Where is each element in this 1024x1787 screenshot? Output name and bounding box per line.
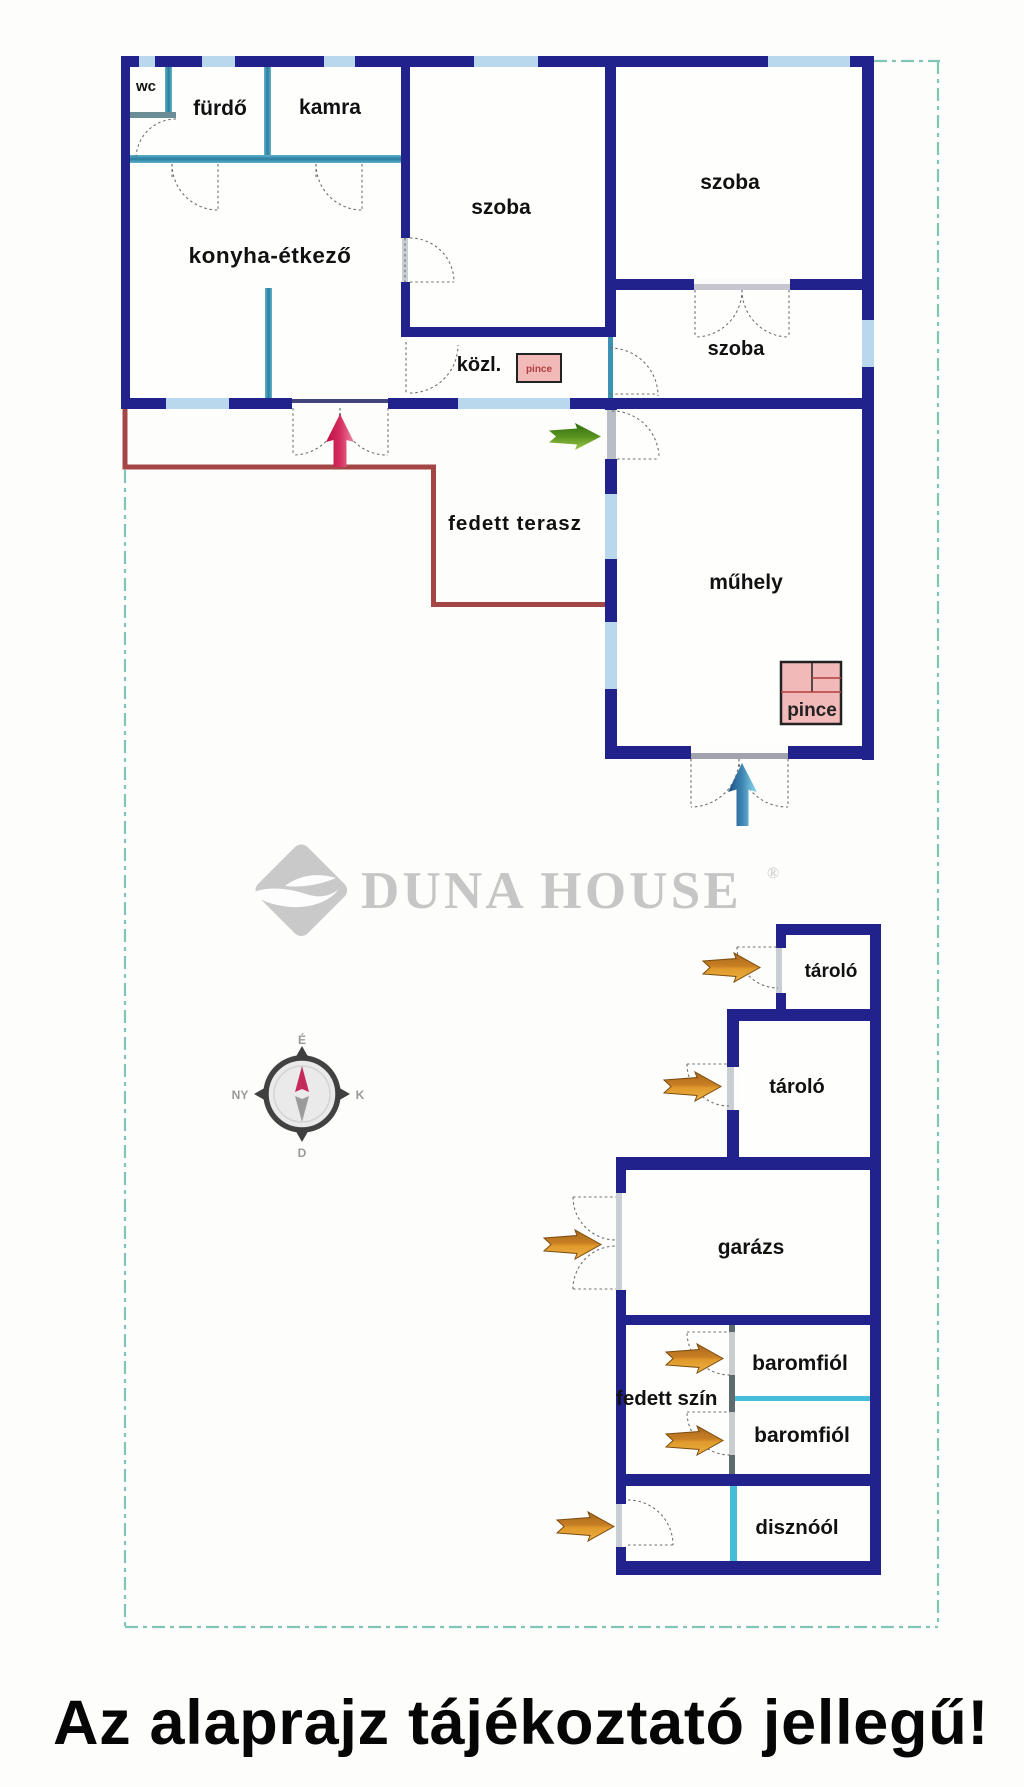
svg-text:konyha-étkező: konyha-étkező [189,243,352,268]
svg-text:fedett terasz: fedett terasz [448,512,582,535]
svg-text:DUNA HOUSE: DUNA HOUSE [361,862,742,920]
svg-text:Az alaprajz tájékoztató jelleg: Az alaprajz tájékoztató jellegű! [53,1688,989,1758]
svg-text:wc: wc [135,78,156,95]
svg-text:D: D [298,1146,307,1160]
svg-text:műhely: műhely [709,571,783,594]
svg-text:kamra: kamra [299,96,361,119]
svg-text:tároló: tároló [805,961,858,982]
svg-text:baromfiól: baromfiól [752,1352,848,1375]
svg-text:garázs: garázs [718,1236,785,1259]
svg-text:K: K [356,1088,365,1102]
svg-text:szoba: szoba [708,338,766,360]
svg-text:disznóól: disznóól [755,1516,838,1539]
svg-text:É: É [298,1032,306,1047]
svg-text:pince: pince [787,700,837,721]
svg-text:szoba: szoba [700,171,760,194]
svg-text:fedett szín: fedett szín [616,1387,717,1410]
svg-text:pince: pince [526,364,553,375]
svg-text:szoba: szoba [471,196,531,219]
svg-text:®: ® [767,865,779,882]
svg-text:NY: NY [232,1088,249,1102]
svg-text:közl.: közl. [457,354,501,376]
svg-text:fürdő: fürdő [193,97,247,120]
svg-text:tároló: tároló [769,1076,825,1098]
svg-text:baromfiól: baromfiól [754,1424,850,1447]
